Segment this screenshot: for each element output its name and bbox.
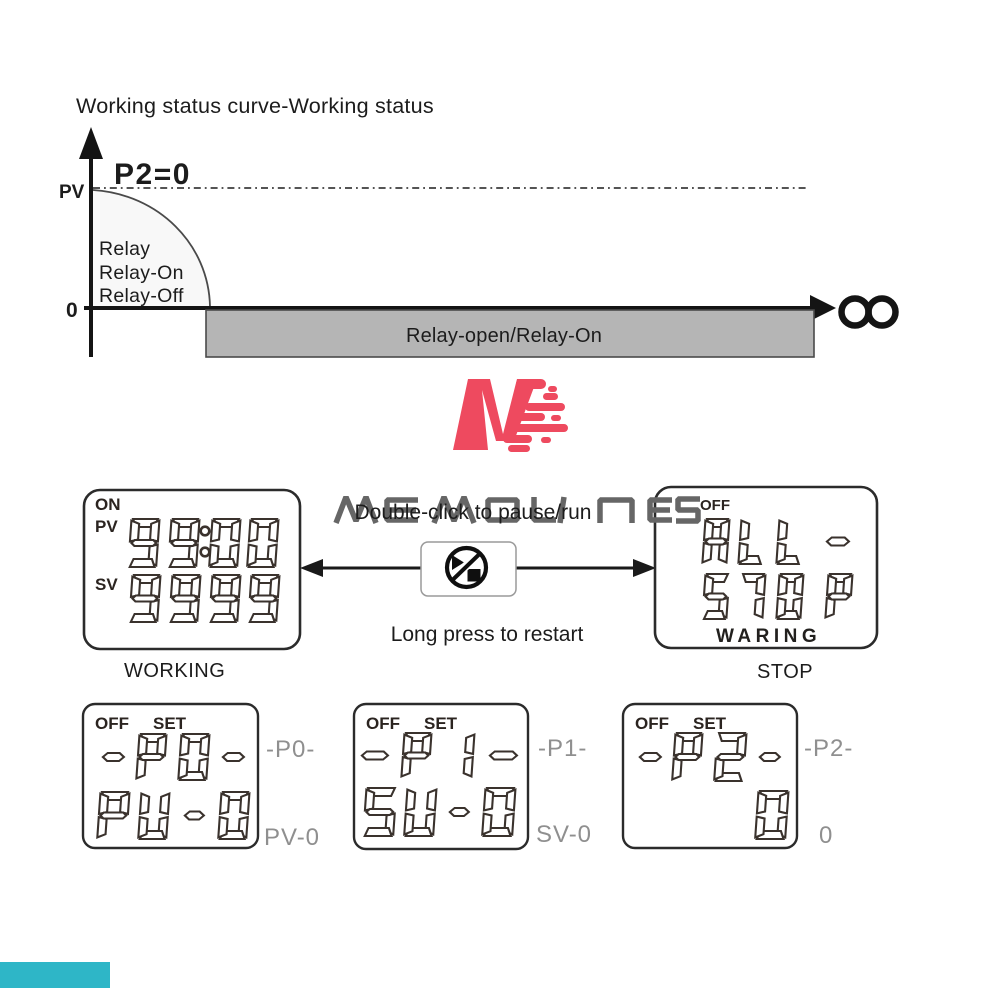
svg-text:OFF: OFF	[635, 714, 669, 733]
svg-text:Relay-On: Relay-On	[99, 262, 184, 284]
svg-text:SET: SET	[424, 714, 458, 733]
svg-text:OFF: OFF	[95, 714, 129, 733]
svg-text:-P0-: -P0-	[266, 736, 315, 763]
svg-text:OFF: OFF	[366, 714, 400, 733]
svg-text:P2=0: P2=0	[114, 158, 191, 191]
svg-text:SET: SET	[693, 714, 727, 733]
svg-text:Working status curve-Working s: Working status curve-Working status	[76, 93, 434, 118]
svg-text:0: 0	[819, 822, 833, 849]
svg-text:PV: PV	[95, 517, 118, 536]
svg-text:Double-click to pause/run: Double-click to pause/run	[355, 501, 592, 524]
svg-text:SV: SV	[95, 575, 118, 594]
svg-text:SV-0: SV-0	[536, 821, 592, 848]
svg-text:ON: ON	[95, 495, 121, 514]
svg-text:-P2-: -P2-	[804, 735, 853, 762]
svg-text:Relay-Off: Relay-Off	[99, 285, 184, 307]
svg-text:OFF: OFF	[700, 497, 730, 514]
svg-text:WARING: WARING	[716, 626, 821, 647]
svg-text:PV: PV	[59, 182, 85, 203]
svg-text:SET: SET	[153, 714, 187, 733]
svg-text:Relay: Relay	[99, 238, 150, 260]
svg-text:Long press to restart: Long press to restart	[391, 623, 584, 646]
svg-text:PV-0: PV-0	[264, 824, 320, 851]
svg-text:0: 0	[66, 299, 78, 322]
svg-text:WORKING: WORKING	[124, 660, 225, 682]
svg-text:STOP: STOP	[757, 661, 813, 683]
svg-text:-P1-: -P1-	[538, 735, 587, 762]
svg-text:Relay-open/Relay-On: Relay-open/Relay-On	[406, 325, 602, 347]
